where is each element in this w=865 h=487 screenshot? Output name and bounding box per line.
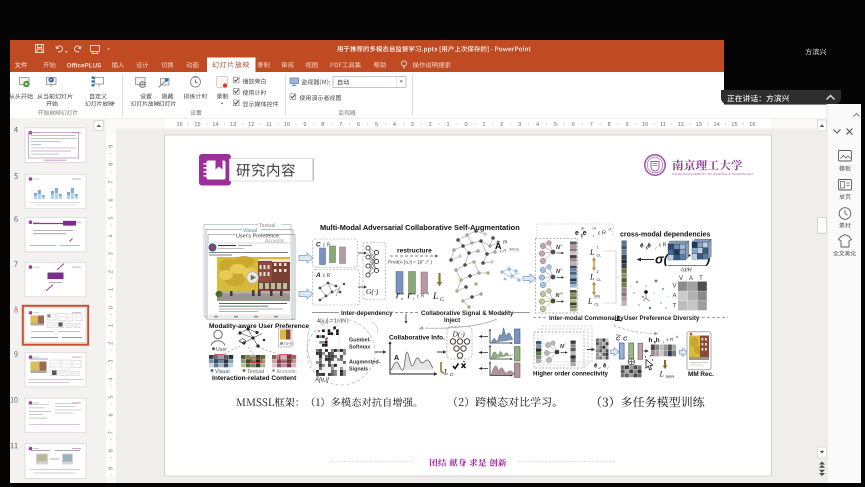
svg-text:7: 7 [339,122,342,128]
svg-text:3: 3 [109,252,115,255]
svg-text:NANJING UNIVERSITY OF SCIENCE: NANJING UNIVERSITY OF SCIENCE & TECHNOLO… [672,172,754,176]
svg-text:u: u [599,366,601,370]
svg-text:T: T [699,276,703,282]
svg-text:7: 7 [109,181,115,184]
svg-text:n: n [561,268,563,272]
svg-text:1: 1 [447,122,450,128]
svg-text:3: 3 [411,122,414,128]
svg-text:10: 10 [284,122,290,128]
svg-text:ε R: ε R [500,249,507,254]
svg-text:Interaction-related Content: Interaction-related Content [212,375,297,382]
svg-text:6: 6 [357,122,360,128]
svg-text:m: m [413,292,416,296]
svg-text:14: 14 [713,122,719,128]
svg-text:User: User [216,347,227,353]
svg-text:Â[u,i]: Â[u,i] [314,377,329,384]
svg-text:C: C [316,242,321,249]
svg-text:8: 8 [608,122,611,128]
svg-text:7: 7 [590,122,593,128]
svg-text:15: 15 [194,122,200,128]
svg-text:9: 9 [626,122,629,128]
svg-text:Modality-aware User Preference: Modality-aware User Preference [209,323,309,330]
svg-text:1: 1 [482,122,485,128]
svg-text:Higher order connectivity: Higher order connectivity [533,371,609,378]
svg-text:T: T [673,304,677,310]
svg-text:restructure: restructure [397,248,432,255]
svg-text:Softmax: Softmax [349,345,370,351]
svg-text:i: i [593,234,594,239]
svg-text:Inter-modal Commonality: Inter-modal Commonality [549,315,624,322]
svg-text:15: 15 [731,122,737,128]
svg-text:ε R: ε R [667,337,674,343]
svg-text:CL: CL [597,278,602,282]
svg-text:10: 10 [642,122,648,128]
svg-text:12: 12 [248,122,254,128]
svg-text:n: n [561,244,563,248]
svg-text:u: u [654,341,656,345]
svg-text:4: 4 [536,122,539,128]
svg-text:ε R: ε R [659,243,667,249]
svg-text:6: 6 [109,413,115,416]
svg-text:CL: CL [595,303,600,307]
svg-text:Item: Item [284,342,294,348]
svg-text:L: L [587,297,593,306]
svg-text:12: 12 [678,122,684,128]
svg-text:3: 3 [518,122,521,128]
svg-text:2: 2 [109,270,115,273]
svg-text:5: 5 [109,395,115,398]
svg-text:V: V [679,276,683,282]
svg-text:u: u [401,297,403,301]
svg-text:1: 1 [109,324,115,327]
svg-text:14: 14 [212,122,218,128]
svg-text:4: 4 [393,122,396,128]
svg-text:4: 4 [109,234,115,237]
svg-text:2: 2 [429,122,432,128]
svg-text:m: m [503,240,507,246]
svg-text:G: G [440,297,444,303]
svg-text:A[u,i] = 1/√|N |: A[u,i] = 1/√|N | [317,318,349,325]
svg-text:1: 1 [109,288,115,291]
svg-text:Gumbel-: Gumbel- [349,338,371,344]
svg-text:7: 7 [109,431,115,434]
svg-text:16: 16 [749,122,755,128]
svg-text:OfficePLUS: OfficePLUS [67,62,102,69]
svg-text:D(·): D(·) [452,330,466,339]
svg-text:0: 0 [464,122,467,128]
svg-text:Signals: Signals [349,367,368,373]
svg-text:√d/H: √d/H [680,267,692,274]
svg-text:d: d [427,292,429,296]
svg-text:5: 5 [554,122,557,128]
svg-text:1: 1 [597,246,599,250]
svg-text:13: 13 [230,122,236,128]
svg-text:L: L [443,368,449,377]
svg-text:A: A [689,276,693,282]
svg-text:13: 13 [696,122,702,128]
svg-text:16: 16 [176,122,182,128]
svg-text:9: 9 [303,122,306,128]
svg-text:8: 8 [109,163,115,166]
svg-text:2: 2 [597,270,599,274]
svg-text:|M|×|I|: |M|×|I| [509,248,519,252]
svg-text:4: 4 [109,378,115,381]
svg-text:CL: CL [597,254,602,258]
svg-text:A: A [315,272,321,279]
svg-text:Prod(A [u,i] = 1|Γ ,Γ ): Prod(A [u,i] = 1|Γ ,Γ ) [388,260,432,266]
svg-text:11: 11 [266,122,272,128]
svg-text:3: 3 [109,360,115,363]
svg-text:6: 6 [572,122,575,128]
svg-text:9: 9 [109,467,115,470]
svg-text:ε R: ε R [323,273,331,279]
svg-text:L: L [432,292,438,302]
svg-text:8: 8 [321,122,324,128]
svg-text:σ(: σ( [655,252,670,267]
svg-text:A: A [394,355,399,362]
svg-text:m: m [401,292,404,296]
svg-text:cross-modal dependencies: cross-modal dependencies [620,232,710,239]
svg-text:2: 2 [500,122,503,128]
svg-text:11: 11 [660,122,666,128]
svg-text:Textual: Textual [259,223,275,229]
svg-text:Augmented-: Augmented- [349,360,381,366]
svg-text:G(·): G(·) [366,287,379,296]
svg-text:ε R: ε R [417,294,425,300]
svg-text:0: 0 [109,306,115,309]
svg-text:User Preference Diversity: User Preference Diversity [624,315,700,322]
svg-text:8: 8 [109,449,115,452]
svg-text:5: 5 [109,216,115,219]
svg-text:L: L [659,370,665,379]
svg-text:Collaborative Signal & Modalit: Collaborative Signal & Modality [421,310,514,317]
svg-text:5: 5 [375,122,378,128]
svg-text:L: L [589,273,595,282]
svg-text:m: m [560,292,563,296]
svg-text:2: 2 [109,342,115,345]
svg-text:9: 9 [109,145,115,148]
svg-text:L: L [589,248,595,257]
svg-text:Inject: Inject [444,317,460,324]
svg-text:V: V [672,284,676,290]
svg-text:MM Rec.: MM Rec. [688,371,714,378]
svg-text:Inter-dependency: Inter-dependency [341,310,393,317]
svg-text:Multi-Modal Adversarial Collab: Multi-Modal Adversarial Collaborative Se… [320,223,520,232]
svg-text:A: A [672,294,676,300]
svg-text:ε R: ε R [598,231,606,237]
svg-text:BPR: BPR [666,374,674,379]
svg-text:|M|: |M| [595,295,600,299]
svg-text:Collaborative Info.: Collaborative Info. [389,335,445,342]
svg-text:6: 6 [109,199,115,202]
